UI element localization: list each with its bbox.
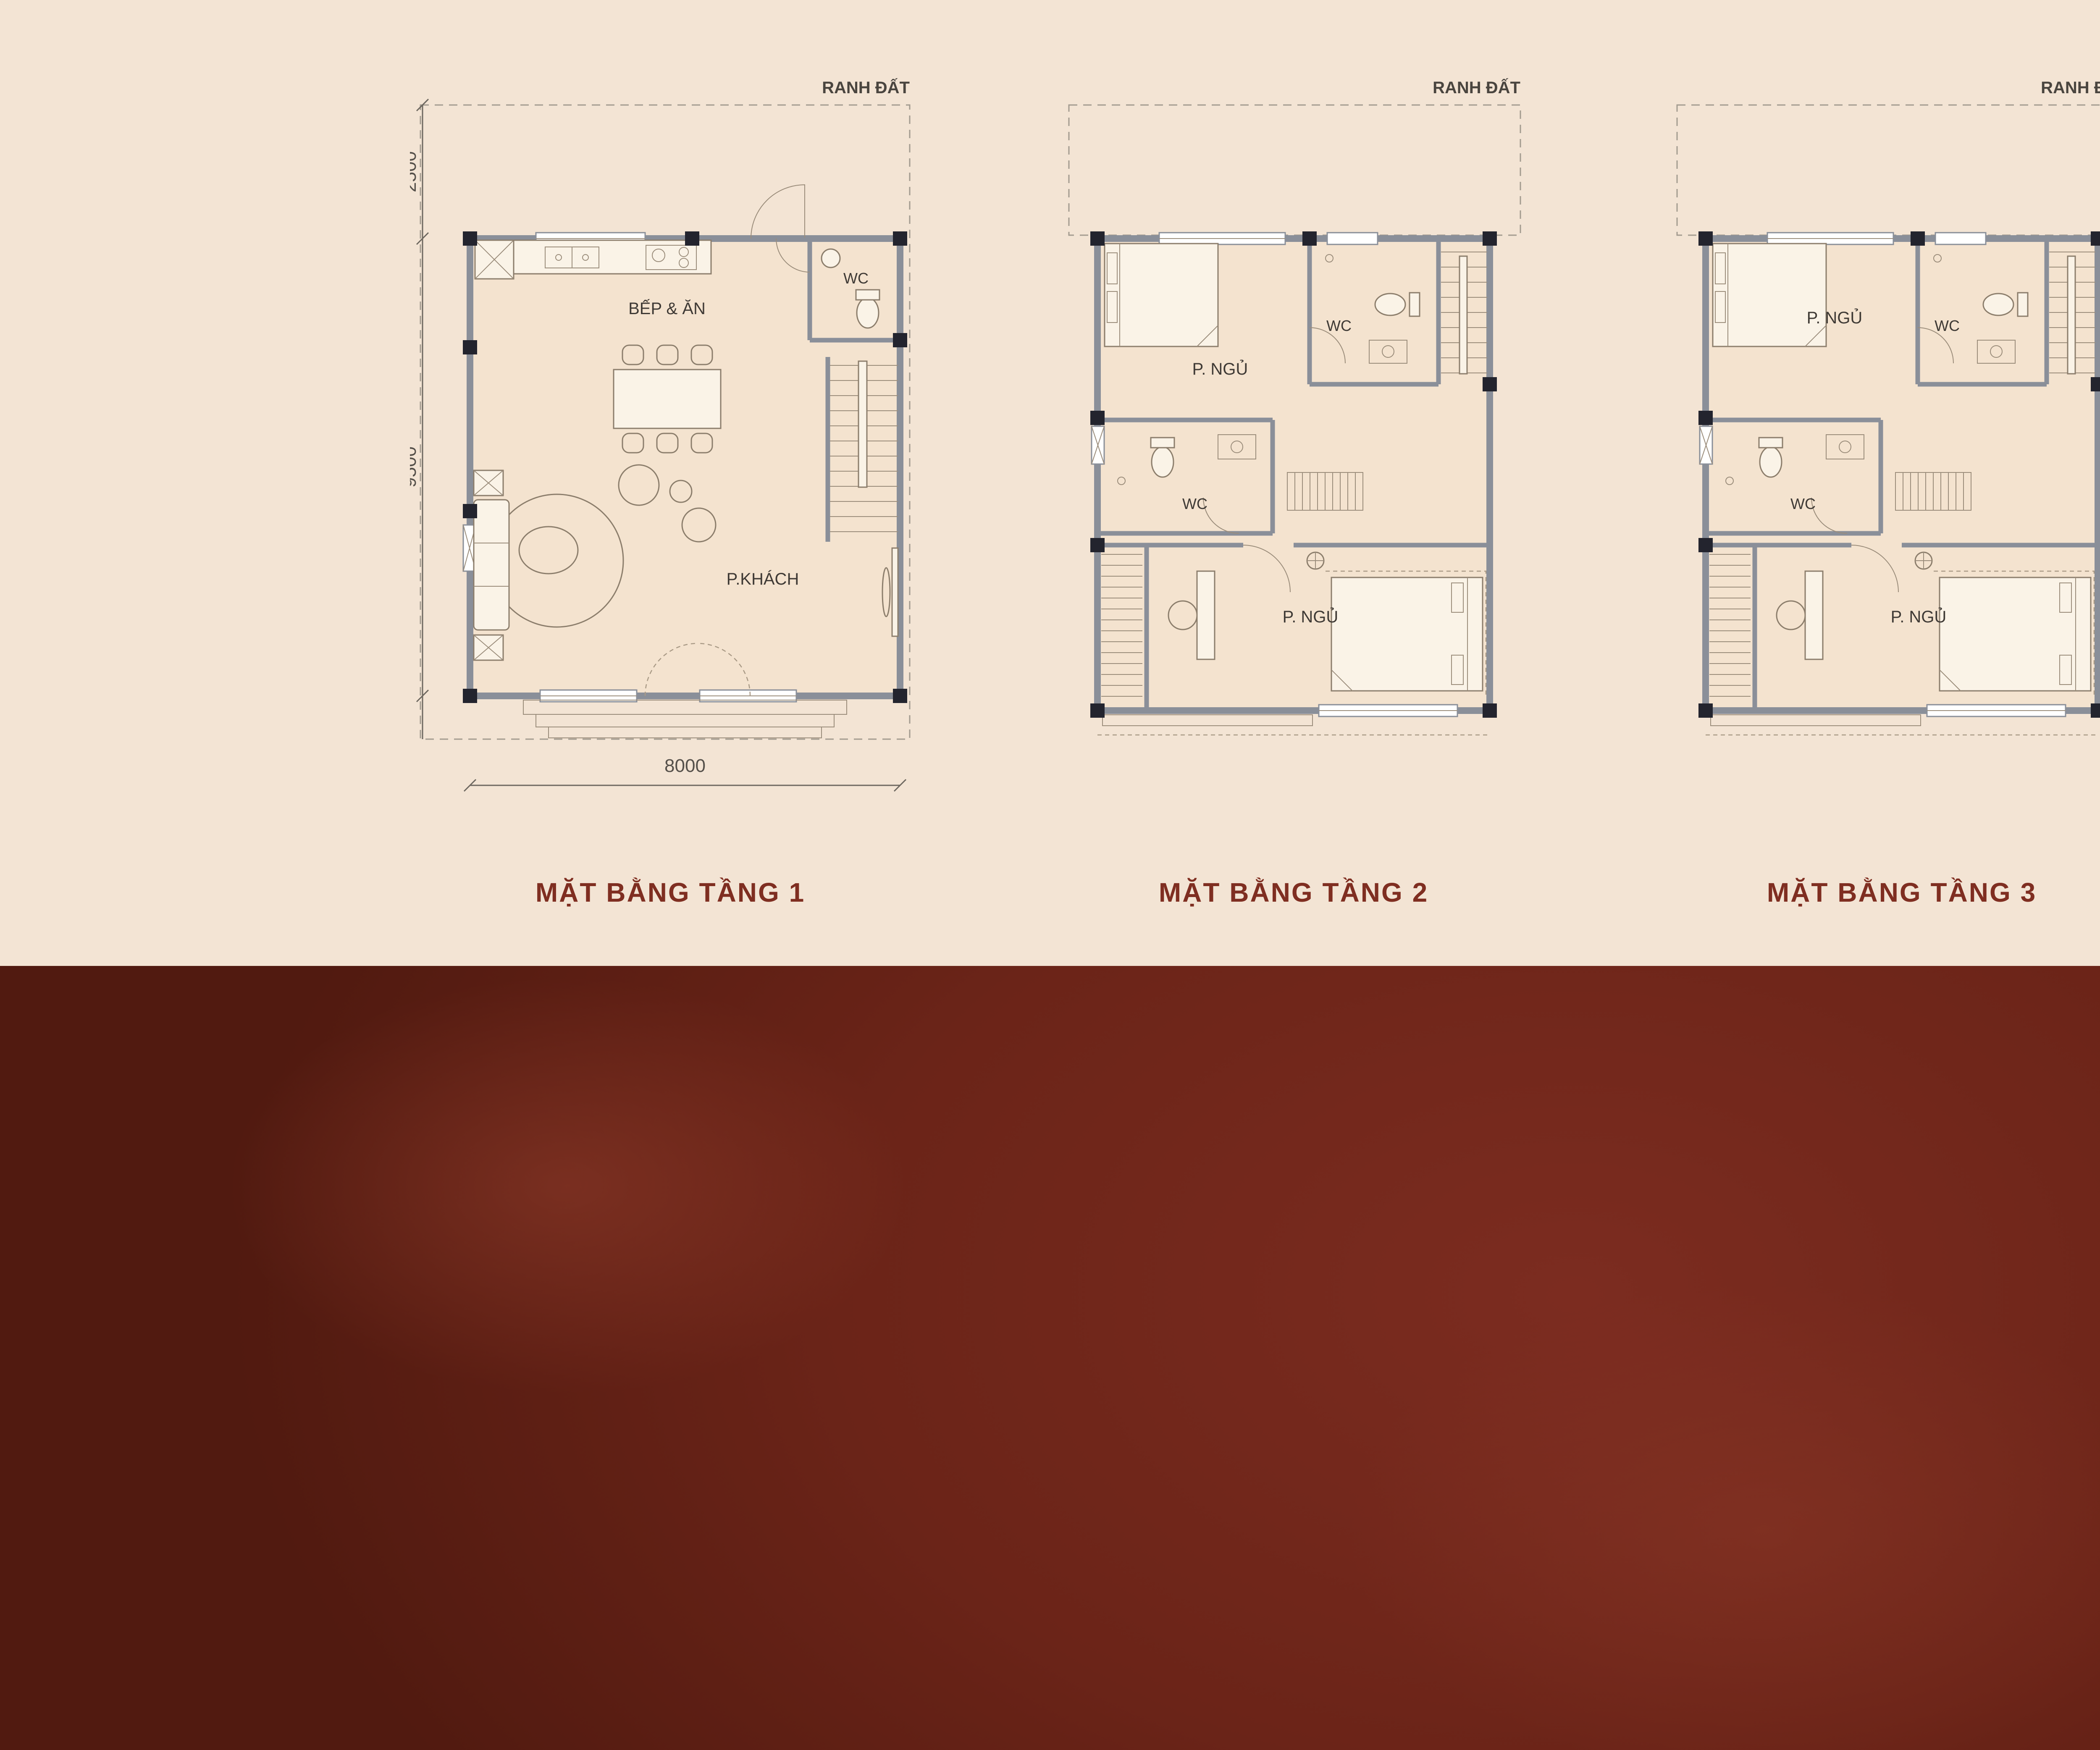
land-boundary-label: RANH ĐẤT <box>1433 78 1520 97</box>
plan-2-caption: MẶT BẰNG TẦNG 2 <box>1126 877 1462 908</box>
info-section: LIỀN KỀ NHÀ VƯỜN Townhouse CB5 - LK - A0… <box>0 966 2100 1750</box>
entry-door-arc <box>751 185 805 239</box>
bed-1 <box>1105 244 1218 346</box>
room-label-wc1: WC <box>1935 317 1960 334</box>
balcony-slab <box>1102 715 1312 726</box>
room-label-wc2: WC <box>1182 495 1207 512</box>
entry-steps <box>523 700 847 738</box>
brochure-page: RANH ĐẤT 2500 9500 8000 <box>0 0 2100 1750</box>
room-label-living: P.KHÁCH <box>727 569 799 588</box>
plan-3-caption: MẶT BẰNG TẦNG 3 <box>1734 877 2070 908</box>
room-label-wc2: WC <box>1790 495 1816 512</box>
dim-setback: 2500 <box>410 151 420 192</box>
plan-1-caption: MẶT BẰNG TẦNG 1 <box>502 877 838 908</box>
room-label-wc1: WC <box>1326 317 1352 334</box>
floor-plan-3: RANH ĐẤT P. NGỦ <box>1667 71 2100 752</box>
room-label-bed2: P. NGỦ <box>1891 607 1947 626</box>
balcony-slab <box>1711 715 1921 726</box>
room-label-wc: WC <box>843 270 869 287</box>
plot-boundary <box>1069 105 1520 235</box>
floor-plan-2: RANH ĐẤT P. NGỦ <box>1058 71 1529 752</box>
room-label-bed2: P. NGỦ <box>1283 607 1339 626</box>
land-boundary-label: RANH ĐẤT <box>822 78 910 97</box>
dim-depth: 9500 <box>410 446 420 488</box>
floor-plan-1: RANH ĐẤT 2500 9500 8000 <box>410 71 931 811</box>
dim-width: 8000 <box>664 756 706 776</box>
kitchen-counter <box>475 240 711 279</box>
room-label-kitchen: BẾP & ĂN <box>628 299 706 318</box>
room-label-bed1: P. NGỦ <box>1192 359 1248 378</box>
land-boundary-label: RANH ĐẤT <box>2041 78 2100 97</box>
room-label-bed1: P. NGỦ <box>1807 308 1863 327</box>
floor-plans-section: RANH ĐẤT 2500 9500 8000 <box>0 0 2100 966</box>
plot-boundary <box>1677 105 2100 235</box>
bed-1 <box>1713 244 1826 346</box>
